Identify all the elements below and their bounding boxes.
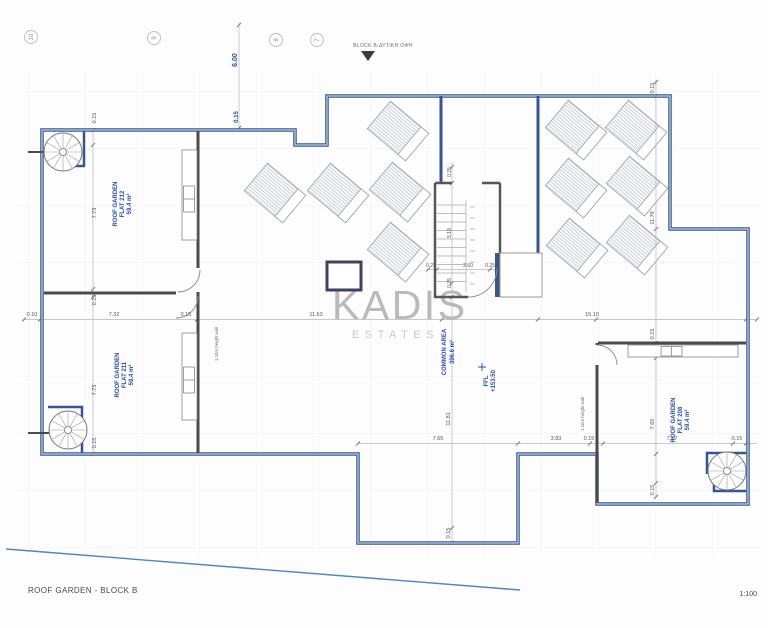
- dim-label: 7.65: [650, 419, 656, 430]
- dim-label: 0.15: [181, 312, 192, 318]
- dim-label: 2.60: [463, 263, 473, 269]
- dim-label: 0.25: [485, 263, 495, 269]
- floorplan-sheet: KADIS ESTATES: [0, 0, 768, 628]
- room-label-line: FLAT 208: [678, 406, 684, 433]
- ffl-label-line: FFL: [484, 375, 490, 386]
- room-label-line: 59.4 m²: [126, 194, 133, 215]
- room-label-line: ROOF GARDEN: [115, 353, 121, 398]
- dim-label: 7.73: [92, 208, 98, 219]
- dim-label: 11.81: [446, 412, 452, 425]
- dim-label: 7.65: [433, 436, 444, 442]
- drawing-title: ROOF GARDEN - BLOCK B: [28, 586, 138, 595]
- dim-label: 0.10: [27, 312, 38, 318]
- dim-label: 11.63: [309, 312, 322, 318]
- dim-label: 0.15: [584, 436, 595, 442]
- room-label-line: 59.4 m²: [128, 365, 135, 386]
- room-label-line: COMMON AREA: [442, 328, 448, 375]
- view-marker-triangle-icon: [361, 51, 375, 61]
- room-label-line: 59.4 m²: [684, 410, 691, 431]
- dim-label: 0.15: [92, 438, 98, 449]
- dim-label: 0.15: [446, 528, 452, 539]
- wall-note: 1.10m height wall: [214, 327, 219, 361]
- view-marker: BLOCK B-ΔΥΤΙΚΗ ΟΨΗ: [353, 43, 413, 61]
- dim-label: 0.15: [732, 436, 743, 442]
- floorplan-drawing: KADIS ESTATES: [0, 0, 768, 628]
- dim-label: 0.15: [650, 83, 656, 94]
- drawing-scale: 1:100: [739, 591, 757, 598]
- dim-label: 0.15: [92, 113, 98, 124]
- grid-bubbles: 10 9 8 7: [25, 31, 324, 47]
- dim-label: 6.00: [232, 53, 239, 67]
- room-label-line: ROOF GARDEN: [671, 398, 677, 443]
- dim-label: 0.15: [92, 295, 98, 306]
- ffl-label-line: +153.50: [491, 369, 497, 392]
- dim-label: 7.73: [92, 385, 98, 396]
- watermark-sub: ESTATES: [352, 329, 439, 341]
- spiral-stair-bottom-right: [708, 452, 746, 490]
- dim-label: 0.15: [650, 485, 656, 496]
- dim-label: 0.25: [426, 263, 436, 269]
- room-label-line: FLAT 211: [122, 361, 128, 388]
- room-label-line: ROOF GARDEN: [113, 182, 119, 227]
- spiral-stair-top-left: [44, 133, 82, 171]
- dim-label: 11.79: [650, 211, 656, 224]
- dim-label: 0.25: [447, 167, 453, 177]
- grid-bubble-10: 10: [29, 33, 35, 40]
- landing-platform: [500, 253, 542, 297]
- dim-label: 0.15: [650, 329, 656, 340]
- dim-label: 3.83: [551, 436, 562, 442]
- room-label-line: FLAT 212: [120, 190, 126, 217]
- dim-label: 7.32: [109, 312, 120, 318]
- shaft: [327, 262, 361, 290]
- dim-label: 15.10: [585, 312, 599, 318]
- site-boundary-line: [6, 549, 520, 590]
- dim-label: 0.25: [447, 278, 453, 288]
- spiral-stair-bottom-left: [49, 411, 87, 449]
- title-block: ROOF GARDEN - BLOCK B 1:100: [28, 586, 757, 598]
- room-label-line: 396.6 m²: [449, 340, 456, 364]
- wall-note: 1.10m height wall: [580, 397, 585, 431]
- dim-label: 5.19: [447, 228, 453, 238]
- dim-label: 0.15: [234, 111, 240, 123]
- view-marker-label: BLOCK B-ΔΥΤΙΚΗ ΟΨΗ: [353, 43, 413, 49]
